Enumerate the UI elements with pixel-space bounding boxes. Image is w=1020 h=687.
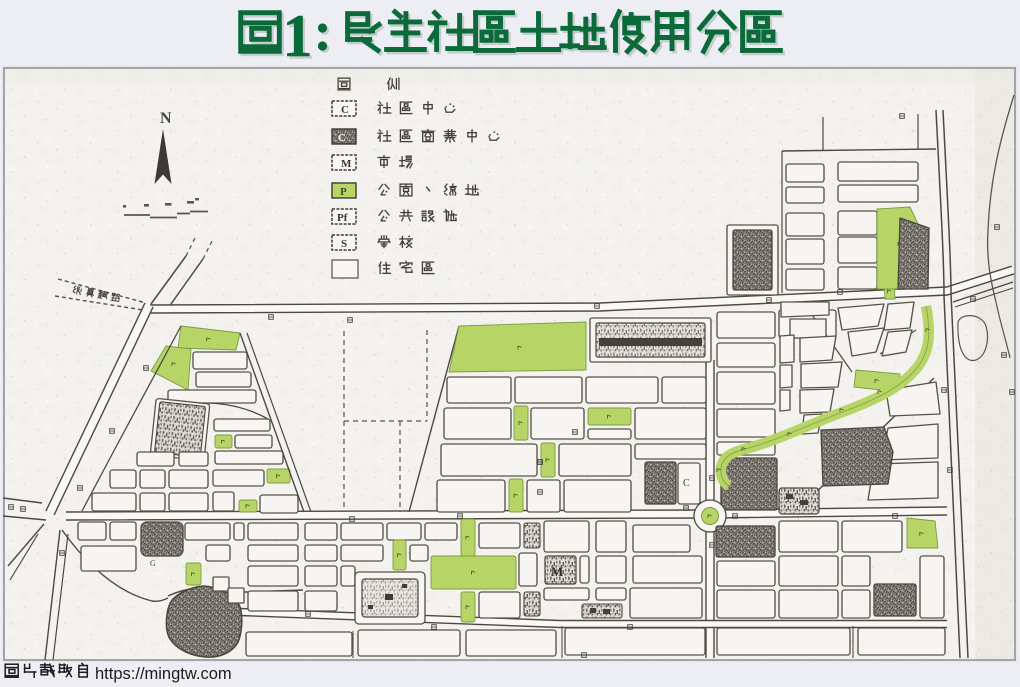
svg-text:P: P [340, 186, 347, 198]
svg-text:N: N [160, 110, 172, 127]
svg-text:C: C [341, 104, 349, 116]
svg-text:Pf: Pf [337, 212, 348, 224]
svg-text:1: 1 [283, 3, 313, 69]
svg-text:https://mingtw.com: https://mingtw.com [95, 665, 232, 683]
svg-text:M: M [341, 158, 352, 170]
svg-text:S: S [341, 238, 347, 250]
svg-text:C: C [683, 478, 690, 489]
svg-text:G: G [150, 559, 156, 568]
svg-text:C: C [338, 132, 346, 144]
svg-text:M: M [551, 564, 563, 579]
